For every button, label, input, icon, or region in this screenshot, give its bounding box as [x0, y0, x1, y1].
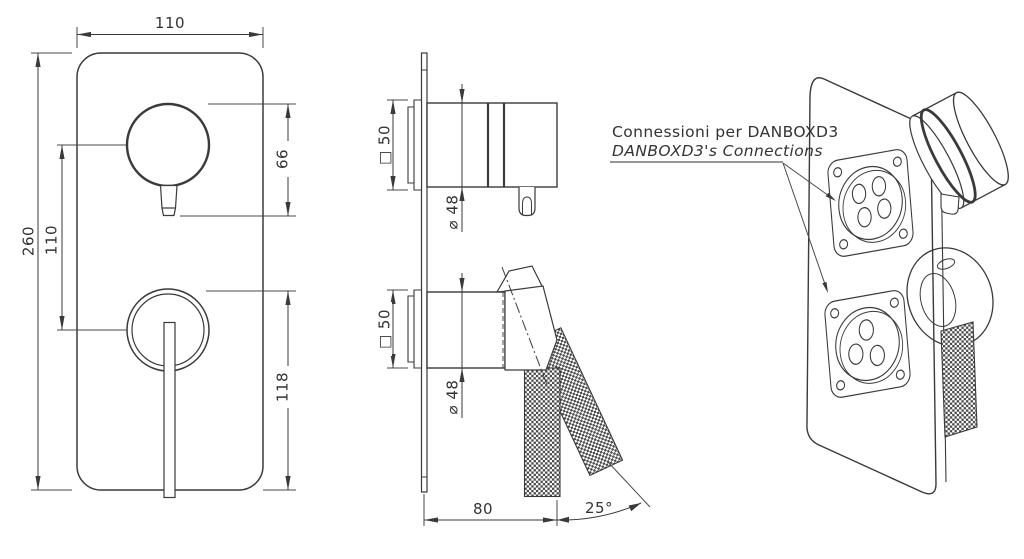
dim-side-bottom-box: □ 50 — [376, 309, 394, 349]
dim-front-top-offset: 66 — [274, 149, 292, 169]
perspective-lever-blade — [941, 322, 977, 437]
side-lever-vertical — [525, 368, 561, 497]
side-view: □ 50 ⌀ 48 □ 50 ⌀ 48 80 25° — [376, 53, 651, 526]
front-lever-blade — [164, 323, 175, 498]
mixer-technical-drawing: 110 260 110 66 118 — [0, 0, 1024, 559]
front-top-knob-stub — [161, 186, 178, 216]
dim-front-bottom-offset: 118 — [274, 372, 292, 402]
dim-side-angle: 25° — [585, 499, 613, 517]
front-top-knob — [127, 104, 209, 186]
dim-front-height: 260 — [20, 226, 38, 256]
dim-side-top-dia: ⌀ 48 — [444, 195, 462, 230]
technical-drawing-page: 110 260 110 66 118 — [0, 0, 1024, 559]
dim-front-width: 110 — [155, 14, 185, 32]
dim-front-spacing: 110 — [43, 225, 61, 255]
side-lever-head — [497, 266, 557, 370]
connection-flange-bottom — [824, 289, 911, 399]
front-view: 110 260 110 66 118 — [20, 14, 297, 498]
side-plate-edge — [422, 53, 428, 492]
side-top-knob-stub — [519, 187, 535, 216]
dim-side-depth: 80 — [473, 500, 493, 518]
annotation-block: Connessioni per DANBOXD3 DANBOXD3's Conn… — [610, 123, 839, 162]
side-top-box-flange — [408, 100, 422, 190]
perspective-top-knob-stub — [941, 194, 959, 214]
side-top-knob-body — [427, 103, 557, 187]
side-bottom-box-flange — [408, 290, 422, 368]
annotation-line2: DANBOXD3's Connections — [612, 142, 823, 160]
side-bottom-knob-body — [427, 292, 505, 368]
annotation-line1: Connessioni per DANBOXD3 — [612, 123, 839, 141]
dim-side-bottom-dia: ⌀ 48 — [444, 380, 462, 415]
connection-flange-top — [827, 148, 914, 258]
dim-side-top-box: □ 50 — [376, 125, 394, 165]
